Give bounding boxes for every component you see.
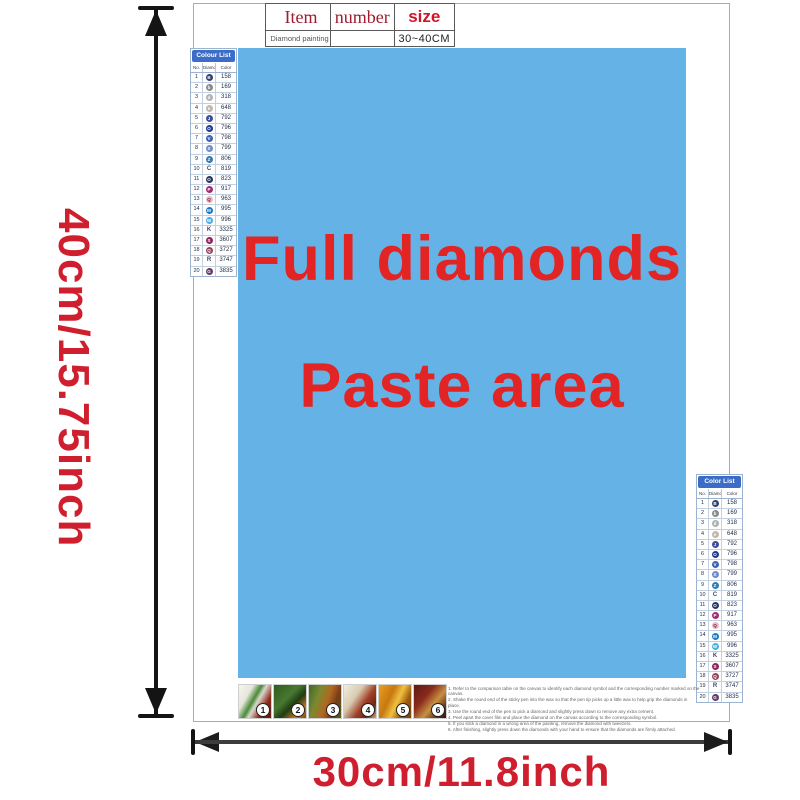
color-list-column-headers: No. Diamond Color <box>191 63 236 73</box>
arrowhead-down-icon <box>145 688 167 714</box>
color-row: 1B158 <box>191 73 236 83</box>
canvas-sheet: Item number size Diamond painting 30~40C… <box>193 3 730 722</box>
color-row: 16K3325 <box>697 652 742 662</box>
color-chip-icon: Z <box>206 156 213 163</box>
diamond-symbol: R <box>709 682 722 691</box>
color-chip-icon: J <box>712 541 719 548</box>
color-row: 17S3607 <box>191 236 236 246</box>
color-row: 9Z806 <box>191 155 236 165</box>
step-thumbnail: 3 <box>308 684 342 719</box>
column-diamond: Diamond <box>709 489 722 498</box>
color-list-right: Color List No. Diamond Color 1B1582b1693… <box>696 474 743 703</box>
dmc-code: 806 <box>722 581 742 590</box>
dmc-code: 3727 <box>722 672 742 681</box>
dmc-code: 798 <box>722 560 742 569</box>
color-list-left-title: Colour List <box>192 50 235 62</box>
color-row: 18Q3727 <box>697 672 742 682</box>
color-row: 15W996 <box>697 642 742 652</box>
dmc-code: 318 <box>722 519 742 528</box>
number-header: number <box>331 4 395 31</box>
instruction-line: 4. Peel apart the cover film and place t… <box>448 715 700 720</box>
dmc-code: 792 <box>216 114 236 123</box>
color-row: 8X799 <box>191 144 236 154</box>
diamond-symbol: C <box>203 165 216 174</box>
diamond-symbol: P <box>203 185 216 194</box>
color-row-number: 20 <box>191 267 203 276</box>
diamond-symbol: Q <box>203 195 216 204</box>
color-row-number: 3 <box>697 519 709 528</box>
color-chip-icon: d <box>206 94 213 101</box>
dmc-code: 823 <box>722 601 742 610</box>
dmc-code: 798 <box>216 134 236 143</box>
color-chip-icon: e <box>712 531 719 538</box>
dmc-code: 169 <box>722 509 742 518</box>
paste-area: Full diamonds Paste area <box>238 48 686 678</box>
color-row-number: 6 <box>191 124 203 133</box>
diamond-symbol: S <box>203 236 216 245</box>
dmc-code: 3835 <box>722 693 742 702</box>
color-row: 13Q963 <box>697 621 742 631</box>
dmc-code: 995 <box>216 205 236 214</box>
diamond-symbol: V <box>203 134 216 143</box>
diamond-symbol: O <box>709 601 722 610</box>
instruction-line: 3. Use the round end of the pen to pick … <box>448 709 700 714</box>
color-chip-icon: M <box>712 633 719 640</box>
color-row-number: 12 <box>191 185 203 194</box>
color-chip-icon: Q <box>712 622 719 629</box>
diamond-symbol: O <box>709 550 722 559</box>
diamond-symbol: S <box>709 662 722 671</box>
number-value <box>331 31 395 47</box>
dmc-code: 819 <box>216 165 236 174</box>
size-header: size <box>394 4 454 31</box>
color-row-number: 18 <box>191 246 203 255</box>
color-row: 1B158 <box>697 499 742 509</box>
color-row: 20G3835 <box>697 693 742 702</box>
color-row: 12P917 <box>191 185 236 195</box>
diamond-symbol: X <box>709 570 722 579</box>
dmc-code: 995 <box>722 631 742 640</box>
width-dimension-label: 30cm/11.8inch <box>193 748 730 796</box>
diamond-symbol: e <box>203 104 216 113</box>
diamond-symbol: d <box>203 93 216 102</box>
dmc-code: 792 <box>722 540 742 549</box>
dmc-code: 3727 <box>216 246 236 255</box>
color-row: 2b169 <box>191 83 236 93</box>
color-chip-icon: b <box>712 510 719 517</box>
color-chip-icon: B <box>712 500 719 507</box>
color-chip-icon: W <box>206 217 213 224</box>
item-header: Item <box>266 4 331 31</box>
diamond-symbol: P <box>709 611 722 620</box>
color-row-number: 15 <box>191 216 203 225</box>
arrow-line <box>195 740 728 744</box>
step-thumbnail: 2 <box>273 684 307 719</box>
product-spec-image: Item number size Diamond painting 30~40C… <box>0 0 800 800</box>
color-row-number: 10 <box>697 591 709 600</box>
color-row: 15W996 <box>191 216 236 226</box>
color-chip-icon: Z <box>712 582 719 589</box>
diamond-symbol: d <box>709 519 722 528</box>
color-row-number: 19 <box>191 256 203 265</box>
color-row: 4e648 <box>697 530 742 540</box>
diamond-symbol: G <box>203 267 216 276</box>
color-list-column-headers: No. Diamond Color <box>697 489 742 499</box>
dmc-code: 3607 <box>722 662 742 671</box>
diamond-symbol: W <box>709 642 722 651</box>
diamond-symbol: R <box>203 256 216 265</box>
dmc-code: 3325 <box>216 226 236 235</box>
color-row-number: 11 <box>697 601 709 610</box>
instruction-line: 5. If you stick a diamond in a wrong are… <box>448 721 700 726</box>
column-no: No. <box>191 63 203 72</box>
color-chip-icon: P <box>712 612 719 619</box>
diamond-symbol: Q <box>709 672 722 681</box>
step-number-badge: 5 <box>396 703 410 717</box>
dmc-code: 3747 <box>216 256 236 265</box>
dmc-code: 158 <box>722 499 742 508</box>
color-row-number: 16 <box>191 226 203 235</box>
color-chip-icon: V <box>712 561 719 568</box>
color-row-number: 13 <box>697 621 709 630</box>
color-chip-icon: V <box>206 135 213 142</box>
diamond-symbol: J <box>709 540 722 549</box>
color-chip-icon: O <box>206 125 213 132</box>
color-row-number: 2 <box>697 509 709 518</box>
color-row: 12P917 <box>697 611 742 621</box>
color-list-right-title: Color List <box>698 476 741 488</box>
color-chip-icon: S <box>206 237 213 244</box>
color-row: 5J792 <box>697 540 742 550</box>
column-diamond: Diamond <box>203 63 216 72</box>
dmc-code: 3747 <box>722 682 742 691</box>
color-chip-icon: J <box>206 115 213 122</box>
diamond-symbol: J <box>203 114 216 123</box>
color-row-number: 15 <box>697 642 709 651</box>
diamond-symbol: O <box>203 175 216 184</box>
dmc-code: 917 <box>722 611 742 620</box>
dmc-code: 3607 <box>216 236 236 245</box>
diamond-symbol: Q <box>709 621 722 630</box>
color-row: 3d318 <box>697 519 742 529</box>
color-row: 14M995 <box>191 205 236 215</box>
diamond-symbol: K <box>709 652 722 661</box>
dmc-code: 799 <box>722 570 742 579</box>
color-chip-icon: O <box>712 551 719 558</box>
color-row: 3d318 <box>191 93 236 103</box>
color-row-number: 8 <box>697 570 709 579</box>
step-thumbnail: 1 <box>238 684 272 719</box>
dmc-code: 963 <box>216 195 236 204</box>
diamond-symbol: V <box>709 560 722 569</box>
color-row: 19R3747 <box>191 256 236 266</box>
color-chip-icon: d <box>712 520 719 527</box>
paste-area-title-line2: Paste area <box>238 350 686 422</box>
color-row-number: 4 <box>191 104 203 113</box>
step-thumbnail: 6 <box>413 684 447 719</box>
instruction-line: 1. Refer to the comparison table on the … <box>448 686 700 697</box>
diamond-symbol: b <box>203 83 216 92</box>
dmc-code: 799 <box>216 144 236 153</box>
height-dimension-label: 40cm/15.75inch <box>48 208 98 547</box>
step-number-badge: 4 <box>361 703 375 717</box>
color-row-number: 12 <box>697 611 709 620</box>
color-row-number: 3 <box>191 93 203 102</box>
instruction-line: 2. Shake the round end of the sticky pen… <box>448 697 700 708</box>
diamond-symbol: M <box>709 631 722 640</box>
color-row: 11O823 <box>191 175 236 185</box>
diamond-symbol: b <box>709 509 722 518</box>
dmc-code: 996 <box>722 642 742 651</box>
color-row: 18Q3727 <box>191 246 236 256</box>
item-value: Diamond painting <box>266 31 331 47</box>
color-chip-icon: O <box>206 176 213 183</box>
color-row: 8X799 <box>697 570 742 580</box>
diamond-symbol: B <box>709 499 722 508</box>
arrow-line <box>154 10 158 714</box>
step-thumbnail: 4 <box>343 684 377 719</box>
instructions-block: 1. Refer to the comparison table on the … <box>448 686 700 733</box>
color-row-number: 14 <box>191 205 203 214</box>
color-list-rows: 1B1582b1693d3184e6485J7926O7967V7988X799… <box>697 499 742 702</box>
color-row-number: 11 <box>191 175 203 184</box>
color-row: 5J792 <box>191 114 236 124</box>
diamond-symbol: K <box>203 226 216 235</box>
color-row-number: 17 <box>697 662 709 671</box>
color-chip-icon: S <box>712 663 719 670</box>
color-row-number: 13 <box>191 195 203 204</box>
diamond-symbol: e <box>709 530 722 539</box>
dmc-code: 318 <box>216 93 236 102</box>
color-chip-icon: Q <box>712 673 719 680</box>
color-chip-icon: Q <box>206 196 213 203</box>
step-number-badge: 3 <box>326 703 340 717</box>
column-color: Color <box>722 489 742 498</box>
diamond-symbol: M <box>203 205 216 214</box>
dmc-code: 823 <box>216 175 236 184</box>
column-color: Color <box>216 63 236 72</box>
color-chip-icon: b <box>206 84 213 91</box>
color-chip-icon: B <box>206 74 213 81</box>
color-row: 4e648 <box>191 104 236 114</box>
step-number-badge: 2 <box>291 703 305 717</box>
size-value: 30~40CM <box>394 31 454 47</box>
dmc-code: 917 <box>216 185 236 194</box>
diamond-symbol: O <box>203 124 216 133</box>
steps-strip: 123456 <box>238 684 447 719</box>
color-chip-icon: G <box>206 268 213 275</box>
color-chip-icon: M <box>206 207 213 214</box>
color-row: 16K3325 <box>191 226 236 236</box>
dmc-code: 806 <box>216 155 236 164</box>
color-row: 7V798 <box>191 134 236 144</box>
color-row: 6O796 <box>191 124 236 134</box>
dmc-code: 796 <box>722 550 742 559</box>
dmc-code: 158 <box>216 73 236 82</box>
color-row-number: 5 <box>697 540 709 549</box>
diamond-symbol: C <box>709 591 722 600</box>
color-row-number: 17 <box>191 236 203 245</box>
color-row-number: 1 <box>697 499 709 508</box>
diamond-symbol: G <box>709 693 722 702</box>
step-number-badge: 6 <box>431 703 445 717</box>
diamond-symbol: X <box>203 144 216 153</box>
dmc-code: 648 <box>216 104 236 113</box>
dmc-code: 648 <box>722 530 742 539</box>
color-row-number: 9 <box>191 155 203 164</box>
diamond-symbol: B <box>203 73 216 82</box>
diamond-symbol: Z <box>709 581 722 590</box>
item-size-table: Item number size Diamond painting 30~40C… <box>265 3 455 47</box>
color-row: 10C819 <box>697 591 742 601</box>
color-row-number: 1 <box>191 73 203 82</box>
color-row-number: 7 <box>697 560 709 569</box>
step-number-badge: 1 <box>256 703 270 717</box>
dmc-code: 3325 <box>722 652 742 661</box>
color-row-number: 18 <box>697 672 709 681</box>
color-row: 17S3607 <box>697 662 742 672</box>
dmc-code: 169 <box>216 83 236 92</box>
color-row: 6O796 <box>697 550 742 560</box>
color-row-number: 7 <box>191 134 203 143</box>
color-row-number: 4 <box>697 530 709 539</box>
color-chip-icon: G <box>712 694 719 701</box>
color-chip-icon: P <box>206 186 213 193</box>
color-row: 13Q963 <box>191 195 236 205</box>
color-chip-icon: X <box>206 145 213 152</box>
color-row: 19R3747 <box>697 682 742 692</box>
color-row-number: 2 <box>191 83 203 92</box>
color-chip-icon: X <box>712 571 719 578</box>
dmc-code: 819 <box>722 591 742 600</box>
dmc-code: 3835 <box>216 267 236 276</box>
color-chip-icon: O <box>712 602 719 609</box>
color-row: 14M995 <box>697 631 742 641</box>
dmc-code: 996 <box>216 216 236 225</box>
diamond-symbol: Z <box>203 155 216 164</box>
color-row-number: 14 <box>697 631 709 640</box>
color-row: 9Z806 <box>697 581 742 591</box>
color-row-number: 8 <box>191 144 203 153</box>
color-row-number: 5 <box>191 114 203 123</box>
color-row-number: 16 <box>697 652 709 661</box>
color-row: 11O823 <box>697 601 742 611</box>
color-row: 7V798 <box>697 560 742 570</box>
color-list-rows: 1B1582b1693d3184e6485J7926O7967V7988X799… <box>191 73 236 276</box>
diamond-symbol: W <box>203 216 216 225</box>
color-row-number: 10 <box>191 165 203 174</box>
dmc-code: 796 <box>216 124 236 133</box>
color-chip-icon: Q <box>206 247 213 254</box>
dmc-code: 963 <box>722 621 742 630</box>
color-row: 2b169 <box>697 509 742 519</box>
step-thumbnail: 5 <box>378 684 412 719</box>
color-row-number: 6 <box>697 550 709 559</box>
color-row: 20G3835 <box>191 267 236 276</box>
color-chip-icon: W <box>712 643 719 650</box>
color-row: 10C819 <box>191 165 236 175</box>
color-list-left: Colour List No. Diamond Color 1B1582b169… <box>190 48 237 277</box>
color-chip-icon: e <box>206 105 213 112</box>
arrow-end-cap <box>138 714 174 718</box>
height-dimension-arrow <box>137 6 175 718</box>
paste-area-title-line1: Full diamonds <box>238 223 686 295</box>
color-row-number: 9 <box>697 581 709 590</box>
diamond-symbol: Q <box>203 246 216 255</box>
column-no: No. <box>697 489 709 498</box>
